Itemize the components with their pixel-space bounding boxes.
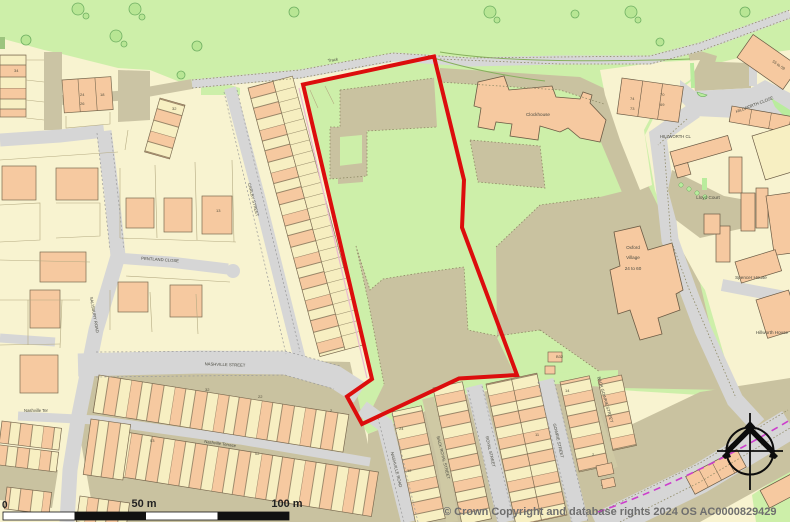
svg-text:32: 32	[172, 106, 177, 111]
svg-text:Spencer House: Spencer House	[735, 275, 767, 280]
svg-text:18: 18	[100, 92, 105, 97]
svg-text:74: 74	[630, 96, 635, 101]
svg-text:HILLWORTH CL: HILLWORTH CL	[660, 134, 691, 139]
svg-text:24: 24	[399, 426, 404, 431]
svg-text:32: 32	[205, 387, 210, 392]
svg-text:Hillworth House: Hillworth House	[756, 330, 789, 335]
svg-text:34: 34	[14, 68, 19, 73]
svg-text:50 m: 50 m	[131, 498, 156, 510]
svg-text:22: 22	[258, 394, 263, 399]
svg-text:02: 02	[255, 451, 260, 456]
svg-text:14: 14	[565, 388, 570, 393]
svg-text:Nashville Ter: Nashville Ter	[24, 408, 48, 413]
svg-text:100 m: 100 m	[271, 498, 302, 510]
svg-text:12: 12	[407, 468, 412, 473]
svg-text:73: 73	[630, 106, 635, 111]
svg-text:Lloyd Court: Lloyd Court	[696, 195, 720, 200]
svg-text:B32: B32	[556, 354, 564, 359]
svg-text:Oxford: Oxford	[626, 245, 640, 250]
svg-text:69: 69	[660, 102, 665, 107]
svg-text:24: 24	[80, 92, 85, 97]
svg-text:Clockhouse: Clockhouse	[526, 112, 550, 117]
svg-text:03: 03	[150, 438, 155, 443]
svg-text:0: 0	[2, 500, 8, 511]
svg-text:© Crown Copyright and database: © Crown Copyright and database rights 20…	[443, 506, 777, 518]
svg-text:Village: Village	[626, 255, 640, 260]
svg-text:24 to 60: 24 to 60	[625, 266, 642, 271]
svg-text:13: 13	[216, 208, 221, 213]
svg-text:70: 70	[660, 92, 665, 97]
svg-text:26: 26	[80, 101, 85, 106]
